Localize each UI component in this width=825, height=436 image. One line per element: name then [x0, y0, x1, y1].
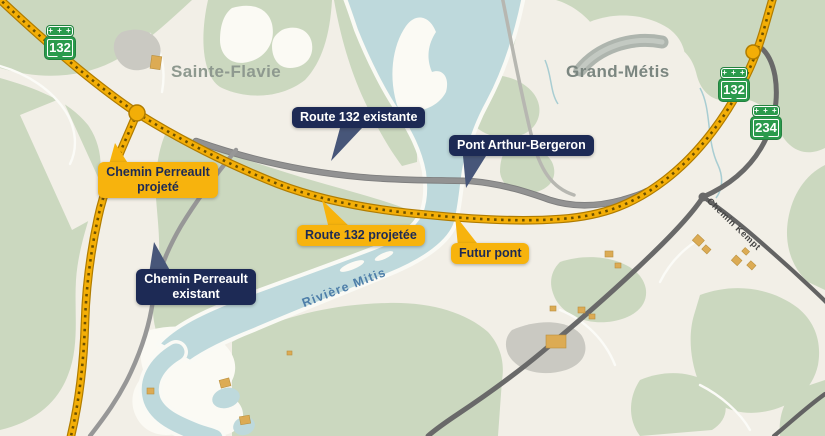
- map-terrain: [0, 0, 825, 436]
- callout-futur-pont: Futur pont: [451, 243, 529, 264]
- callout-chemin-perreault-existant: Chemin Perreault existant: [136, 269, 256, 305]
- callout-chemin-perreault-projete: Chemin Perreault projeté: [98, 162, 218, 198]
- callout-route-132-existante: Route 132 existante: [292, 107, 425, 128]
- callout-pointer-route-132-existante: [331, 128, 362, 161]
- projected-junction-node: [746, 45, 760, 59]
- fleur-de-lis-icons: + + +: [47, 26, 73, 36]
- projected-interchange-node: [129, 105, 145, 121]
- fleur-de-lis-icons: + + +: [753, 106, 779, 116]
- project-map: Sainte-Flavie Grand-Métis Rivière Mitis …: [0, 0, 825, 436]
- shield-tail: [729, 96, 739, 118]
- shield-tail: [55, 54, 65, 76]
- callout-route-132-projetee: Route 132 projetée: [297, 225, 425, 246]
- route-shield-132-right: + + + 132: [719, 68, 749, 119]
- route-shield-234: + + + 234: [751, 106, 781, 157]
- place-label-grand-metis: Grand-Métis: [566, 62, 670, 82]
- shield-tail: [761, 134, 771, 156]
- place-label-sainte-flavie: Sainte-Flavie: [171, 62, 281, 82]
- route-shield-132-left: + + + 132: [45, 26, 75, 77]
- fleur-de-lis-icons: + + +: [721, 68, 747, 78]
- callout-pont-arthur-bergeron: Pont Arthur-Bergeron: [449, 135, 594, 156]
